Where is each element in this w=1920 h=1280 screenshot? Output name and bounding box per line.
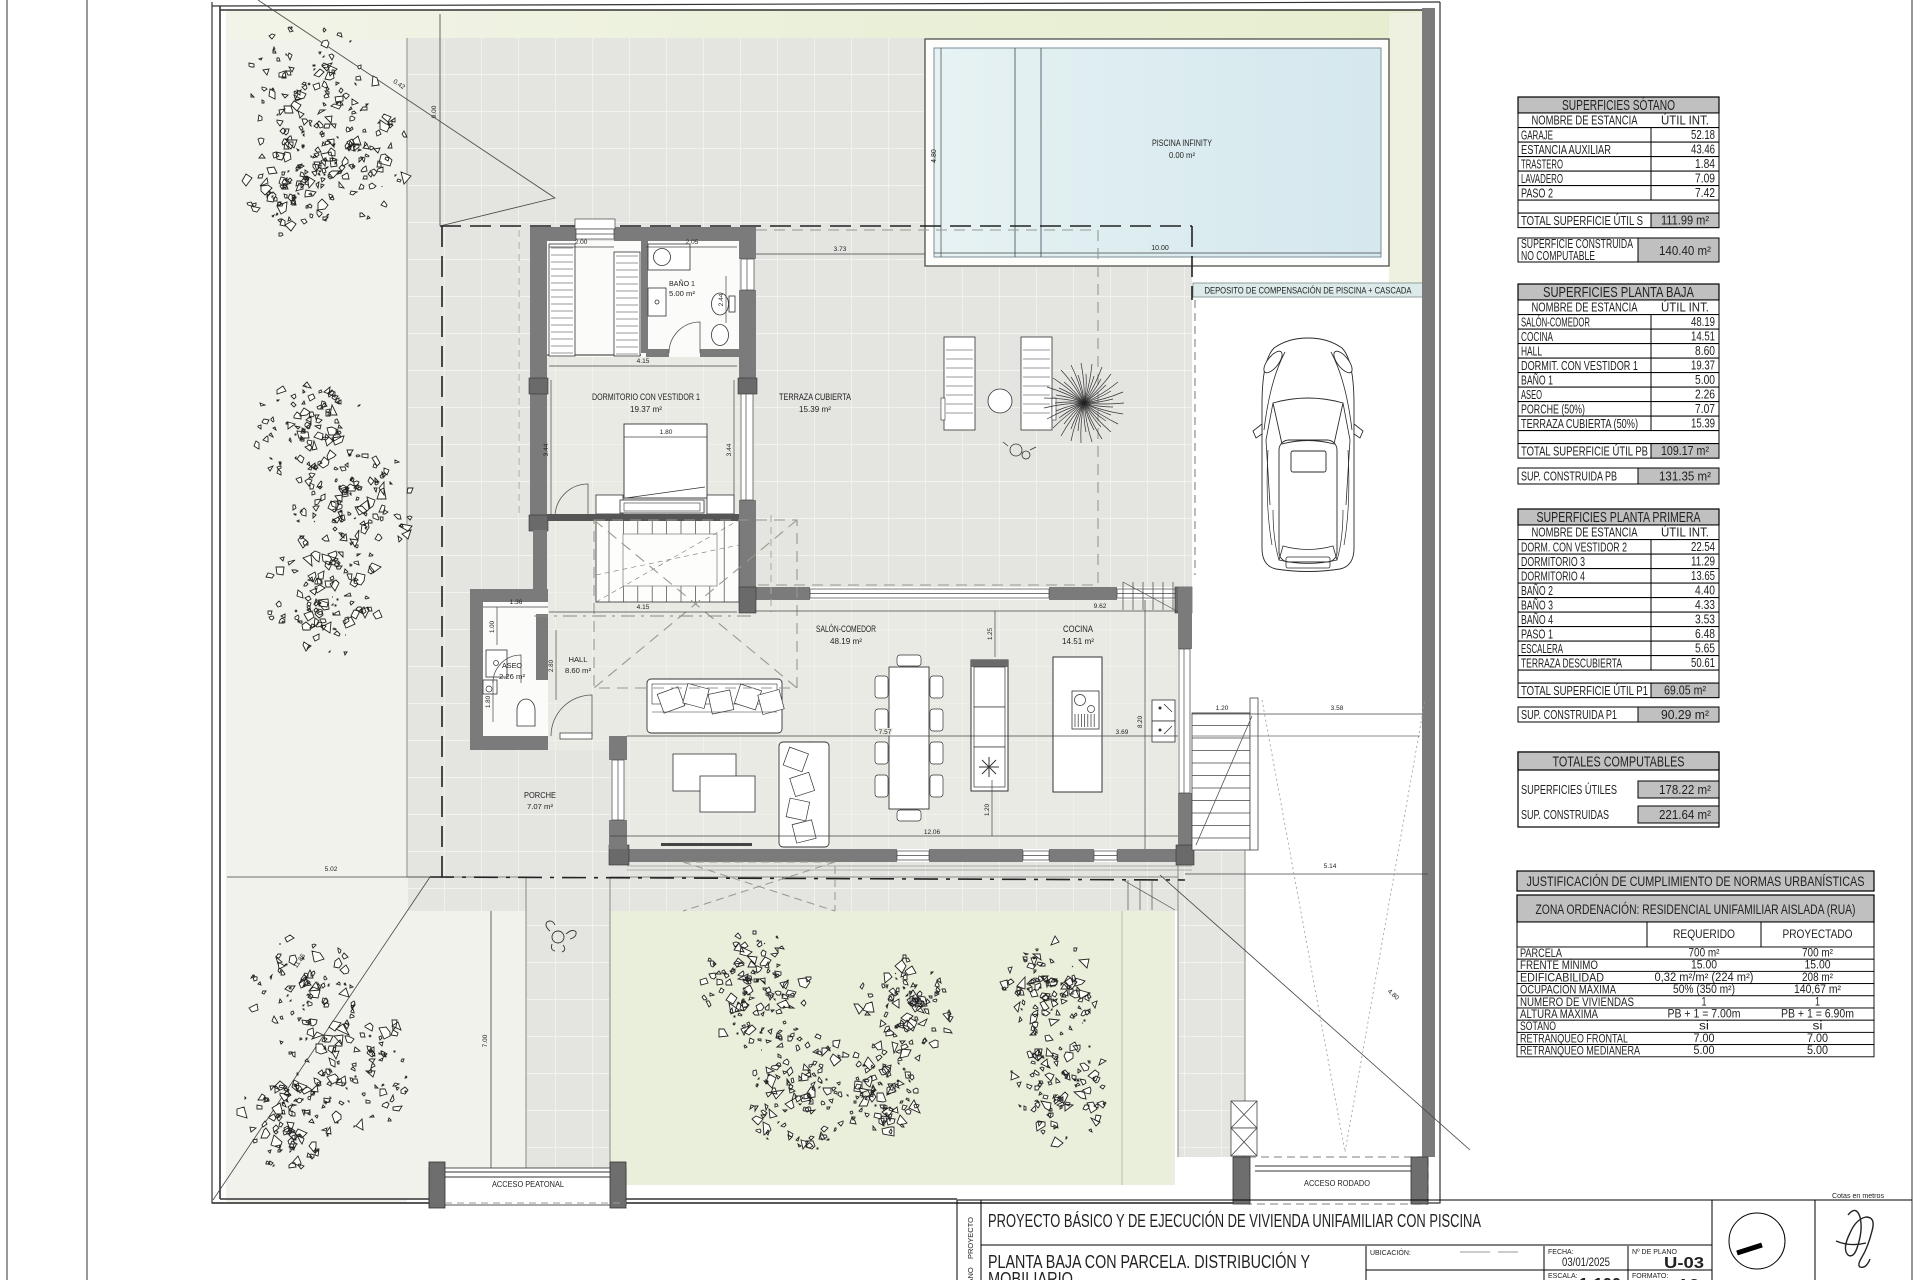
svg-text:5.00 m²: 5.00 m²	[669, 291, 696, 298]
svg-text:700 m²: 700 m²	[1689, 948, 1720, 960]
svg-text:178.22 m²: 178.22 m²	[1659, 782, 1712, 797]
svg-text:TRASTERO: TRASTERO	[1521, 157, 1563, 172]
svg-text:PISCINA INFINITY: PISCINA INFINITY	[1152, 138, 1212, 148]
svg-text:12.06: 12.06	[924, 829, 941, 836]
svg-text:ASEO: ASEO	[502, 661, 522, 670]
svg-text:ALTURA MÁXIMA: ALTURA MÁXIMA	[1520, 1008, 1598, 1021]
svg-text:4.40: 4.40	[1695, 583, 1715, 598]
svg-text:1: 1	[1702, 996, 1707, 1008]
svg-text:ESCALERA: ESCALERA	[1521, 641, 1563, 656]
svg-text:9.00: 9.00	[431, 105, 438, 118]
svg-text:SALÓN-COMEDOR: SALÓN-COMEDOR	[816, 624, 876, 634]
svg-text:3.73: 3.73	[834, 246, 847, 253]
svg-text:PASO 2: PASO 2	[1521, 186, 1553, 201]
svg-text:2.26 m²: 2.26 m²	[499, 674, 526, 681]
svg-text:131.35 m²: 131.35 m²	[1659, 469, 1712, 484]
svg-text:6.48: 6.48	[1695, 626, 1715, 641]
svg-text:si: si	[1813, 1021, 1823, 1033]
svg-text:TOTAL SUPERFICIE ÚTIL S: TOTAL SUPERFICIE ÚTIL S	[1521, 213, 1643, 228]
svg-text:TERRAZA CUBIERTA (50%): TERRAZA CUBIERTA (50%)	[1521, 416, 1638, 431]
svg-text:03/01/2025: 03/01/2025	[1562, 1255, 1610, 1269]
svg-text:14.51 m²: 14.51 m²	[1062, 637, 1094, 646]
svg-text:4.15: 4.15	[637, 358, 650, 365]
svg-text:208 m²: 208 m²	[1802, 972, 1833, 984]
svg-text:52.18: 52.18	[1691, 127, 1715, 142]
svg-text:11.29: 11.29	[1691, 554, 1715, 569]
svg-text:JUSTIFICACIÓN DE CUMPLIMIENTO: JUSTIFICACIÓN DE CUMPLIMIENTO DE NORMAS …	[1527, 874, 1865, 889]
svg-text:COCINA: COCINA	[1063, 624, 1093, 634]
svg-text:13.65: 13.65	[1691, 568, 1715, 583]
svg-text:BAÑO 1: BAÑO 1	[1521, 373, 1553, 388]
svg-text:PASO 1: PASO 1	[1521, 627, 1553, 642]
svg-text:50.61: 50.61	[1691, 655, 1715, 670]
svg-text:2.44: 2.44	[718, 293, 725, 306]
svg-text:BAÑO 1: BAÑO 1	[669, 279, 695, 288]
svg-text:SUPERFICIES ÚTILES: SUPERFICIES ÚTILES	[1521, 782, 1617, 797]
svg-text:NOMBRE DE ESTANCIA: NOMBRE DE ESTANCIA	[1532, 525, 1638, 540]
svg-text:1.20: 1.20	[1216, 705, 1229, 712]
svg-text:FRENTE MÍNIMO: FRENTE MÍNIMO	[1520, 959, 1598, 972]
svg-text:221.64 m²: 221.64 m²	[1659, 807, 1712, 822]
svg-text:NO COMPUTABLE: NO COMPUTABLE	[1521, 248, 1595, 263]
svg-text:PB + 1 = 6.90m: PB + 1 = 6.90m	[1781, 1009, 1854, 1021]
svg-text:PLANO: PLANO	[966, 1267, 975, 1280]
svg-text:7.07: 7.07	[1695, 401, 1715, 416]
svg-text:NOMBRE DE ESTANCIA: NOMBRE DE ESTANCIA	[1532, 113, 1638, 128]
svg-text:50% (350 m²): 50% (350 m²)	[1673, 984, 1735, 996]
svg-text:TERRAZA DESCUBIERTA: TERRAZA DESCUBIERTA	[1521, 656, 1622, 671]
svg-text:RETRANQUEO MEDIANERA: RETRANQUEO MEDIANERA	[1520, 1046, 1640, 1058]
svg-text:7.00: 7.00	[1807, 1033, 1828, 1045]
svg-text:DORMIT. CON VESTIDOR 1: DORMIT. CON VESTIDOR 1	[1521, 358, 1638, 373]
svg-text:SÓTANO: SÓTANO	[1520, 1020, 1556, 1033]
svg-text:HALL: HALL	[569, 655, 588, 664]
svg-text:PROYECTO: PROYECTO	[966, 1217, 975, 1259]
svg-text:NUMERO DE VIVIENDAS: NUMERO DE VIVIENDAS	[1520, 997, 1634, 1009]
svg-text:700 m²: 700 m²	[1802, 948, 1833, 960]
svg-text:BAÑO 3: BAÑO 3	[1521, 598, 1553, 613]
svg-text:DORMITORIO 4: DORMITORIO 4	[1521, 569, 1585, 584]
svg-text:GARAJE: GARAJE	[1521, 128, 1553, 143]
svg-text:SUP. CONSTRUIDAS: SUP. CONSTRUIDAS	[1521, 807, 1609, 822]
svg-text:5.00: 5.00	[1695, 372, 1715, 387]
svg-text:SUPERFICIES SÓTANO: SUPERFICIES SÓTANO	[1562, 97, 1675, 114]
svg-text:15.00: 15.00	[1805, 960, 1831, 972]
svg-text:DORMITORIO 3: DORMITORIO 3	[1521, 554, 1585, 569]
svg-text:NOMBRE DE ESTANCIA: NOMBRE DE ESTANCIA	[1532, 300, 1638, 315]
svg-text:140,67 m²: 140,67 m²	[1794, 984, 1841, 996]
svg-text:DORM. CON VESTIDOR 2: DORM. CON VESTIDOR 2	[1521, 540, 1627, 555]
svg-text:TOTAL SUPERFICIE ÚTIL P1: TOTAL SUPERFICIE ÚTIL P1	[1521, 683, 1648, 698]
svg-text:5.00: 5.00	[1694, 1045, 1715, 1057]
svg-text:ESTANCIA AUXILIAR: ESTANCIA AUXILIAR	[1521, 142, 1611, 157]
svg-text:15.39 m²: 15.39 m²	[799, 405, 831, 414]
svg-text:RETRANQUEO FRONTAL: RETRANQUEO FRONTAL	[1520, 1033, 1628, 1045]
svg-text:7.00: 7.00	[1694, 1033, 1715, 1045]
svg-text:4.33: 4.33	[1695, 597, 1715, 612]
svg-text:8.60: 8.60	[1695, 343, 1715, 358]
svg-text:5.00: 5.00	[1807, 1045, 1828, 1057]
svg-text:PARCELA: PARCELA	[1520, 948, 1562, 960]
svg-text:DEPOSITO DE COMPENSACIÓN DE PI: DEPOSITO DE COMPENSACIÓN DE PISCINA + CA…	[1205, 286, 1412, 296]
svg-text:TOTAL SUPERFICIE ÚTIL PB: TOTAL SUPERFICIE ÚTIL PB	[1521, 444, 1648, 459]
svg-text:REQUERIDO: REQUERIDO	[1673, 927, 1735, 941]
svg-text:1.00: 1.00	[489, 620, 496, 633]
svg-text:3.44: 3.44	[543, 443, 550, 456]
svg-text:ACCESO PEATONAL: ACCESO PEATONAL	[492, 1179, 564, 1189]
svg-text:5.14: 5.14	[1324, 863, 1337, 870]
svg-text:15.39: 15.39	[1691, 416, 1715, 431]
svg-text:ASEO: ASEO	[1521, 387, 1542, 402]
svg-text:109.17 m²: 109.17 m²	[1661, 443, 1710, 458]
svg-text:ÚTIL INT.: ÚTIL INT.	[1661, 525, 1709, 540]
svg-text:69.05 m²: 69.05 m²	[1664, 683, 1707, 698]
svg-text:7.42: 7.42	[1695, 185, 1715, 200]
svg-text:3.44: 3.44	[726, 443, 733, 456]
svg-text:OCUPACIÓN MÁXIMA: OCUPACIÓN MÁXIMA	[1520, 984, 1616, 997]
svg-text:1.25: 1.25	[987, 627, 994, 640]
svg-text:PORCHE: PORCHE	[524, 791, 556, 800]
svg-text:7.57: 7.57	[879, 729, 892, 736]
svg-text:19.37: 19.37	[1691, 358, 1715, 373]
svg-text:5.02: 5.02	[325, 866, 338, 873]
svg-text:SUPERFICIES PLANTA PRIMERA: SUPERFICIES PLANTA PRIMERA	[1537, 509, 1701, 526]
svg-text:3.53: 3.53	[1695, 612, 1715, 627]
svg-text:SUP. CONSTRUIDA P1: SUP. CONSTRUIDA P1	[1521, 707, 1617, 722]
svg-text:1:100: 1:100	[1579, 1276, 1621, 1280]
svg-text:1.80: 1.80	[485, 695, 492, 708]
svg-text:1.20: 1.20	[984, 803, 991, 816]
svg-text:SUPERFICIES PLANTA BAJA: SUPERFICIES PLANTA BAJA	[1543, 284, 1694, 301]
svg-text:1.36: 1.36	[510, 599, 523, 606]
svg-text:ZONA ORDENACIÓN: RESIDENCIAL U: ZONA ORDENACIÓN: RESIDENCIAL UNIFAMILIAR…	[1536, 902, 1856, 917]
svg-text:Cotas en metros: Cotas en metros	[1832, 1191, 1884, 1200]
svg-text:U-03: U-03	[1664, 1255, 1704, 1272]
svg-text:PB + 1 = 7.00m: PB + 1 = 7.00m	[1668, 1009, 1741, 1021]
svg-text:PORCHE (50%): PORCHE (50%)	[1521, 402, 1585, 417]
svg-text:MOBILIARIO: MOBILIARIO	[988, 1269, 1073, 1280]
svg-text:7.00: 7.00	[482, 1034, 489, 1047]
svg-text:BAÑO 4: BAÑO 4	[1521, 612, 1553, 627]
svg-text:FORMATO:: FORMATO:	[1632, 1273, 1668, 1280]
svg-text:90.29 m²: 90.29 m²	[1661, 707, 1710, 722]
svg-text:SUP. CONSTRUIDA PB: SUP. CONSTRUIDA PB	[1521, 469, 1617, 484]
svg-text:BAÑO 2: BAÑO 2	[1521, 583, 1553, 598]
svg-text:43.46: 43.46	[1691, 142, 1715, 157]
svg-text:SALÓN-COMEDOR: SALÓN-COMEDOR	[1521, 315, 1590, 330]
svg-text:140.40 m²: 140.40 m²	[1659, 243, 1712, 258]
svg-text:111.99 m²: 111.99 m²	[1661, 213, 1710, 228]
svg-text:1.80: 1.80	[660, 429, 673, 436]
svg-text:ACCESO RODADO: ACCESO RODADO	[1304, 1178, 1370, 1188]
svg-text:19.37 m²: 19.37 m²	[630, 405, 662, 414]
svg-text:0,32 m²/m² (224 m²): 0,32 m²/m² (224 m²)	[1655, 972, 1754, 984]
svg-text:0.00 m²: 0.00 m²	[1169, 151, 1195, 160]
svg-text:3.58: 3.58	[1331, 705, 1344, 712]
svg-text:HALL: HALL	[1521, 344, 1542, 359]
svg-text:2.80: 2.80	[548, 659, 555, 672]
svg-text:4.15: 4.15	[637, 604, 650, 611]
svg-text:si: si	[1699, 1021, 1709, 1033]
svg-text:2.26: 2.26	[1695, 387, 1715, 402]
svg-text:COCINA: COCINA	[1521, 329, 1553, 344]
svg-text:TOTALES COMPUTABLES: TOTALES COMPUTABLES	[1553, 754, 1685, 771]
svg-text:7.09: 7.09	[1695, 171, 1715, 186]
svg-text:8.20: 8.20	[1137, 715, 1144, 728]
svg-text:7.07 m²: 7.07 m²	[527, 804, 554, 811]
svg-text:PROYECTO BÁSICO Y DE EJECUCIÓN: PROYECTO BÁSICO Y DE EJECUCIÓN DE VIVIEN…	[988, 1210, 1481, 1231]
svg-text:1.84: 1.84	[1695, 156, 1715, 171]
svg-text:2.05: 2.05	[686, 239, 699, 246]
svg-text:2.00: 2.00	[575, 239, 588, 246]
svg-text:LAVADERO: LAVADERO	[1521, 171, 1563, 186]
svg-text:EDIFICABILIDAD: EDIFICABILIDAD	[1520, 972, 1604, 984]
svg-text:22.54: 22.54	[1691, 539, 1715, 554]
svg-text:PROYECTADO: PROYECTADO	[1783, 927, 1853, 941]
svg-text:ÚTIL INT.: ÚTIL INT.	[1661, 300, 1709, 315]
svg-text:UBICACIÓN:: UBICACIÓN:	[1370, 1248, 1411, 1257]
svg-text:DORMITORIO CON VESTIDOR 1: DORMITORIO CON VESTIDOR 1	[592, 392, 700, 402]
svg-text:ÚTIL INT.: ÚTIL INT.	[1661, 113, 1709, 128]
svg-text:9.62: 9.62	[1094, 603, 1107, 610]
svg-text:15.00: 15.00	[1691, 960, 1717, 972]
svg-text:ESCALA:: ESCALA:	[1548, 1273, 1578, 1280]
svg-text:1: 1	[1815, 996, 1820, 1008]
svg-text:3.69: 3.69	[1116, 729, 1129, 736]
svg-text:8.60 m²: 8.60 m²	[565, 668, 592, 675]
svg-text:48.19 m²: 48.19 m²	[830, 637, 862, 646]
svg-text:5.65: 5.65	[1695, 641, 1715, 656]
svg-text:14.51: 14.51	[1691, 329, 1715, 344]
svg-text:10.00: 10.00	[1151, 245, 1169, 252]
svg-text:4.80: 4.80	[931, 149, 938, 163]
svg-text:TERRAZA CUBIERTA: TERRAZA CUBIERTA	[779, 392, 851, 402]
svg-text:48.19: 48.19	[1691, 314, 1715, 329]
